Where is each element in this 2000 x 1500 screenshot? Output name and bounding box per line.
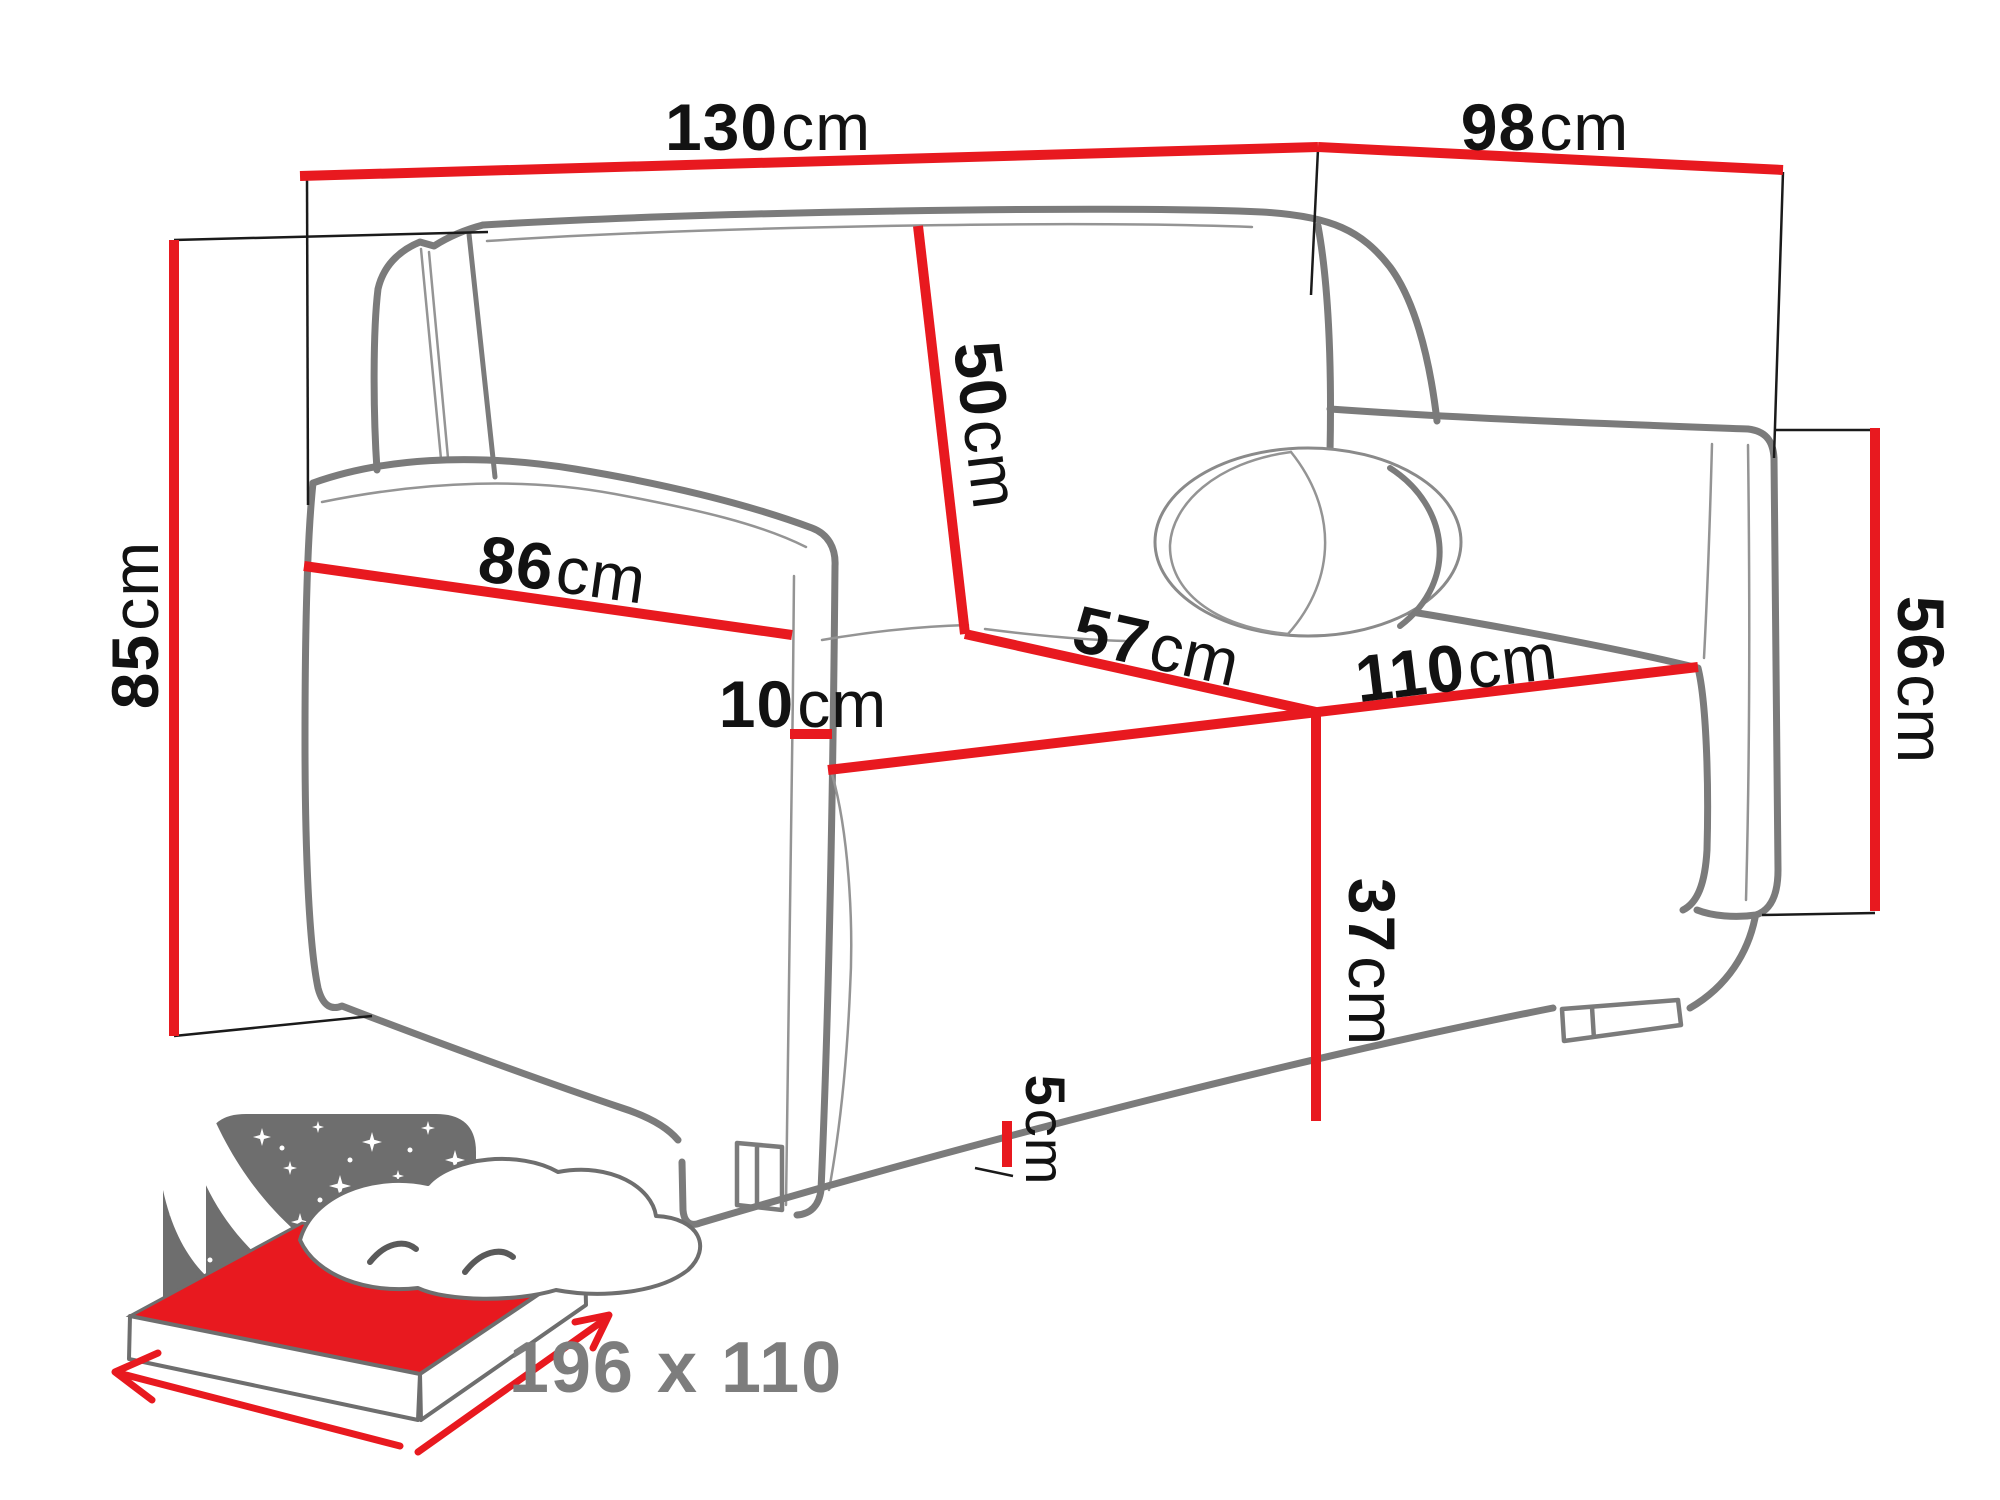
label-backrest: 50cm	[940, 337, 1034, 513]
ext-arm-height-bottom	[1762, 913, 1875, 915]
backrest-cushion-right-edge	[1318, 226, 1331, 453]
label-seat-height: 37cm	[1335, 878, 1409, 1046]
front-bottom-rail	[682, 918, 1755, 1224]
sofa-dimension-drawing: 130cm 98cm 85cm 50cm 86cm 10cm 57cm 110c…	[0, 0, 2000, 1500]
right-leg	[1562, 1000, 1681, 1041]
label-leg-height: 5cm	[1014, 1075, 1077, 1186]
sleeping-area-size: 196 x 110	[509, 1328, 843, 1408]
backrest-top-seam	[487, 224, 1252, 241]
label-armrest-width: 10cm	[719, 667, 887, 741]
label-arm-height: 56cm	[1884, 596, 1958, 764]
dimension-diagram: 130cm 98cm 85cm 50cm 86cm 10cm 57cm 110c…	[0, 0, 2000, 1500]
label-height-left: 85cm	[98, 541, 172, 709]
label-depth-top: 98cm	[1461, 90, 1629, 164]
backrest-left-panel	[374, 225, 483, 470]
ext-width-left	[307, 176, 308, 505]
sofa-outline	[305, 209, 1778, 1224]
ext-leg-height	[975, 1168, 1013, 1176]
round-pillow	[1155, 448, 1461, 636]
ext-depth-right	[1774, 172, 1783, 458]
ext-height-bottom	[174, 1016, 372, 1036]
label-width-top: 130cm	[665, 90, 871, 164]
backrest-fold-thin-lines	[421, 249, 448, 459]
label-armrest-length: 86cm	[474, 521, 651, 618]
dim-line-seat-front	[828, 667, 1698, 770]
seat-cushion-front-edge	[822, 625, 968, 640]
label-seat-front: 110cm	[1351, 618, 1561, 716]
backrest-fold-line	[469, 234, 495, 477]
sleep-function-icon: 196 x 110	[0, 1114, 843, 1452]
